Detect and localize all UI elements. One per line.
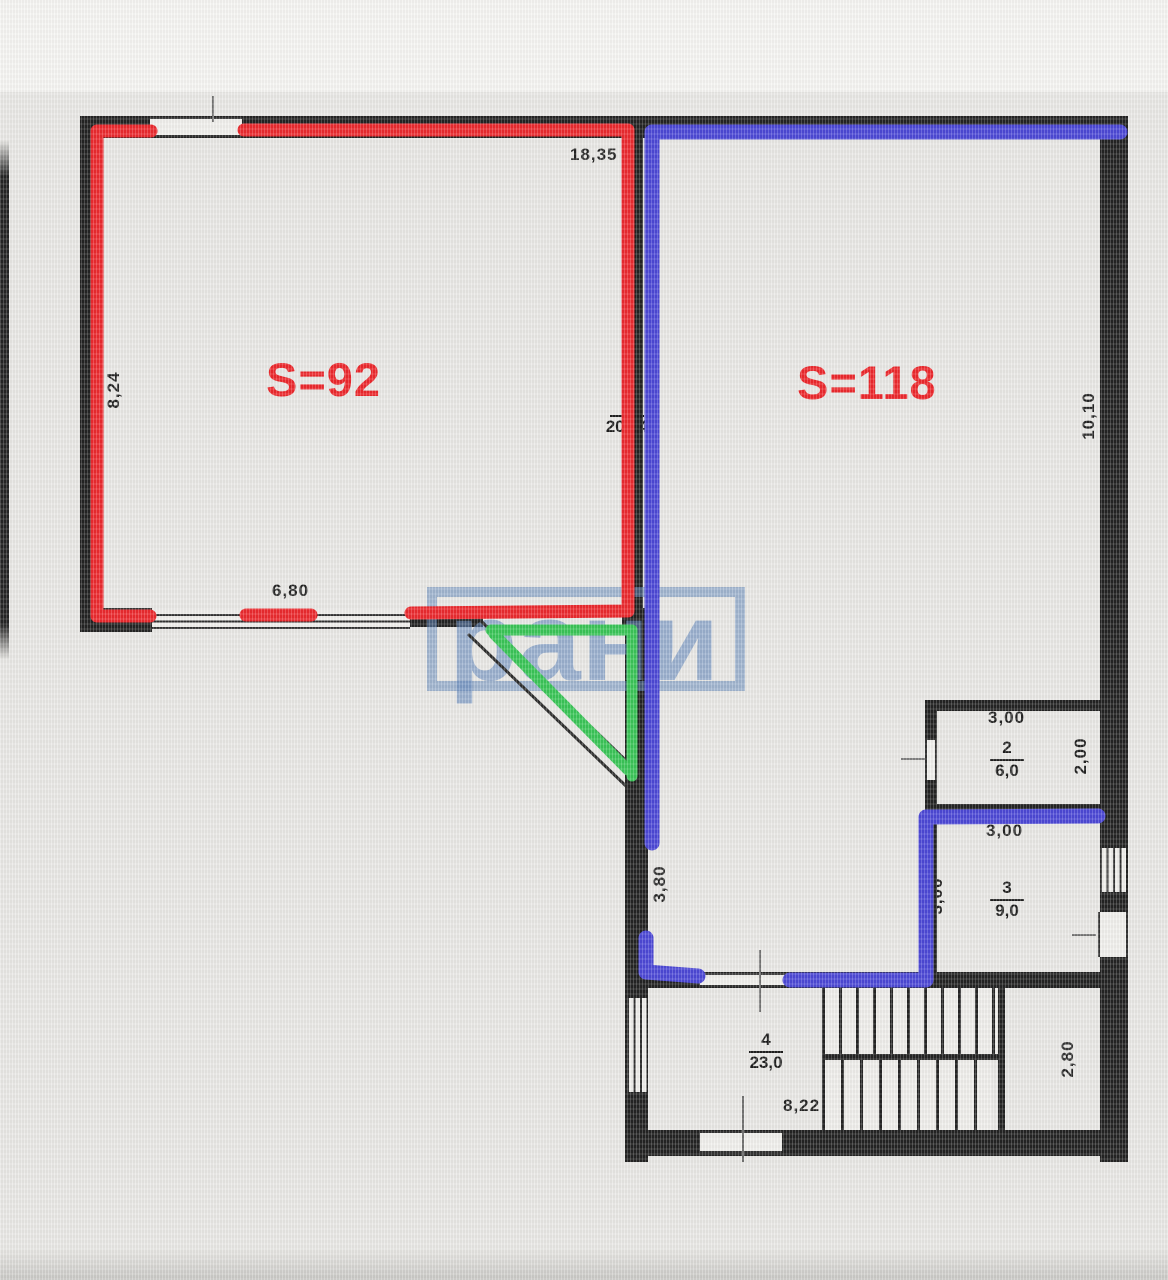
tick-top-opening (212, 96, 214, 122)
room2-area: 6,0 (995, 759, 1019, 780)
room2-label: 2 6,0 (974, 738, 1040, 781)
blue-outline-hall-corner (646, 938, 698, 976)
room2-number: 2 (990, 738, 1023, 761)
tick-room3-door (1072, 934, 1096, 936)
room1-number: 1 (610, 394, 643, 417)
dim-left-height: 8,24 (104, 371, 124, 408)
area-label-s118: S=118 (797, 355, 937, 410)
stair-right-wall (998, 988, 1005, 1130)
watermark-logo-text: рани (449, 586, 720, 698)
dim-room3-left: 3,00 (927, 877, 947, 914)
tick-hall-door (759, 950, 761, 1012)
dim-stairs-right: 2,80 (1058, 1040, 1078, 1077)
screen-top-glare (0, 0, 1168, 92)
dim-right-height: 10,10 (1079, 392, 1099, 440)
room1-area: 200,4 (606, 415, 649, 436)
room1-label: 1 200,4 (594, 394, 660, 437)
wall-room2-room3-divider (925, 804, 1100, 813)
window-right-room3 (1100, 848, 1126, 892)
dim-room2-top: 3,00 (988, 708, 1025, 728)
stair-flight-upper (822, 988, 998, 1054)
dim-bottom-width: 8,22 (783, 1096, 820, 1116)
room4-label: 4 23,0 (733, 1030, 799, 1073)
stair-flight-lower (822, 1060, 992, 1130)
dim-room3-top: 3,00 (986, 821, 1023, 841)
tick-room2-door (901, 758, 925, 760)
dim-room2-right: 2,00 (1071, 737, 1091, 774)
dim-hall-height: 3,80 (650, 865, 670, 902)
dim-s92-bottom: 6,80 (272, 581, 309, 601)
screen-left-bezel (0, 140, 9, 660)
room3-number: 3 (990, 878, 1023, 901)
wall-left (80, 116, 97, 632)
door-right-room3 (1098, 912, 1128, 957)
floor-plan-photo: рани S=92 S=118 18,35 8,24 6,80 10,10 3,… (0, 0, 1168, 1280)
dim-top-width: 18,35 (570, 145, 618, 165)
opening-top-left (150, 117, 242, 137)
door-room2-left (925, 740, 937, 780)
staircase (822, 988, 1004, 1130)
area-label-s92: S=92 (266, 352, 381, 407)
door-hall-room4 (700, 973, 786, 987)
room3-label: 3 9,0 (974, 878, 1040, 921)
window-lower-left (627, 998, 647, 1092)
wall-middle-vertical (633, 118, 643, 632)
door-bottom-entrance (700, 1131, 782, 1153)
room4-number: 4 (749, 1030, 782, 1053)
wall-right (1100, 116, 1128, 1162)
screen-bottom-shade (0, 1248, 1168, 1280)
window-s92-bottom (152, 610, 410, 629)
wall-s92-bottom-corner (80, 608, 152, 632)
room4-area: 23,0 (749, 1051, 782, 1072)
tick-bottom-door (742, 1096, 744, 1162)
room3-area: 9,0 (995, 899, 1019, 920)
blue-outline-s118-top-left (652, 132, 1120, 843)
